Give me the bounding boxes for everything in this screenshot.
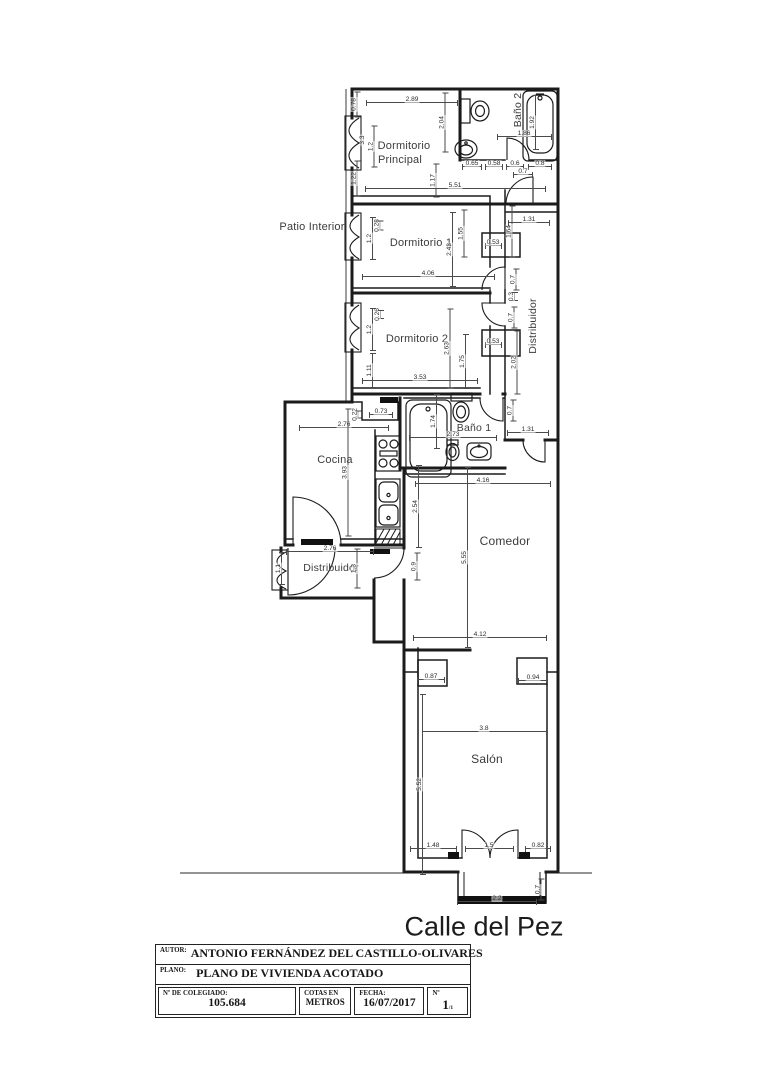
dimension-label: 0.6 — [506, 166, 524, 167]
plan-text-overlay: DormitorioPrincipalBaño 2Patio InteriorD… — [0, 0, 763, 1080]
dimension-label: 0.7 — [513, 174, 533, 175]
units-cell: COTAS EN METROS — [299, 987, 351, 1015]
room-label: Baño 1 — [457, 422, 491, 434]
units-label: COTAS EN — [304, 990, 343, 997]
dimension-label: 0.82 — [525, 848, 551, 849]
plan-label: PLANO: — [160, 967, 186, 974]
dimension-label: 1.2 — [372, 217, 373, 260]
dimension-label: 1.17 — [436, 164, 437, 198]
sheet-number-cell: Nº 1/1 — [427, 987, 468, 1015]
dimension-label: 2.02 — [517, 331, 518, 395]
dimension-label: 1.92 — [535, 95, 536, 150]
dimension-label: 3.93 — [348, 409, 349, 537]
room-label: Dormitorio 2 — [386, 333, 448, 345]
date-value: 16/07/2017 — [358, 997, 420, 1013]
dimension-label: 1.2 — [374, 126, 375, 168]
dimension-label: 2.54 — [418, 465, 419, 548]
title-block-author-row: AUTOR: ANTONIO FERNÁNDEZ DEL CASTILLO-OL… — [156, 945, 470, 965]
college-number-cell: Nº DE COLEGIADO: 105.684 — [158, 987, 296, 1015]
dimension-label: 0.73 — [369, 414, 393, 415]
dimension-label: 0.94 — [518, 680, 548, 681]
dimension-label: 0.28 — [380, 221, 381, 231]
title-block-bottom-row: Nº DE COLEGIADO: 105.684 COTAS EN METROS… — [156, 985, 470, 1017]
title-block-plan-row: PLANO: PLANO DE VIVIENDA ACOTADO — [156, 965, 470, 985]
college-number-value: 105.684 — [162, 997, 292, 1013]
college-number-label: Nº DE COLEGIADO: — [163, 990, 288, 997]
dimension-label: 1.5 — [465, 848, 514, 849]
units-value: METROS — [303, 997, 347, 1013]
room-label: Distribuidor — [527, 298, 539, 354]
room-label: Dormitorio 1 — [390, 237, 452, 249]
dimension-label: 4.06 — [362, 276, 495, 277]
dimension-label: 0.58 — [485, 166, 503, 167]
dimension-label: 0.9 — [417, 553, 418, 581]
dimension-label: 0.22 — [358, 411, 359, 419]
dimension-label: 2.63 — [450, 309, 451, 389]
dimension-label: 0.65 — [462, 166, 482, 167]
room-label: Salón — [471, 752, 503, 766]
dimension-label: 3.8 — [422, 731, 547, 732]
dimension-label: 5.55 — [467, 467, 468, 648]
dimension-label: 0.7 — [516, 269, 517, 291]
title-block: AUTOR: ANTONIO FERNÁNDEZ DEL CASTILLO-OL… — [155, 944, 471, 1018]
dimension-label: 1.31 — [508, 222, 550, 223]
room-label: Principal — [378, 154, 422, 166]
dimension-label: 1.3 — [357, 549, 358, 589]
dimension-label: 2.73 — [409, 437, 497, 438]
dimension-label: 4.12 — [413, 637, 547, 638]
sheet-number-value: 1/1 — [431, 997, 464, 1013]
dimension-label: 2.2 — [457, 901, 537, 902]
dimension-label: 0.26 — [380, 310, 381, 319]
dimension-label: 1.1 — [281, 552, 282, 585]
room-label: Patio Interior — [279, 221, 344, 233]
street-name-label: Calle del Pez — [404, 912, 563, 943]
dimension-label: 0.78 — [357, 92, 358, 118]
dimension-label: 4.16 — [415, 483, 551, 484]
dimension-label: 1.86 — [497, 136, 552, 137]
dimension-label: 2.76 — [299, 427, 389, 428]
dimension-label: 0.7 — [541, 879, 542, 901]
dimension-label: 1.2 — [372, 308, 373, 351]
date-label: FECHA: — [359, 990, 416, 997]
dimension-label: 0.7 — [513, 400, 514, 422]
author-label: AUTOR: — [160, 947, 187, 954]
dimension-label: 1.64 — [512, 206, 513, 258]
floor-plan-page: DormitorioPrincipalBaño 2Patio InteriorD… — [0, 0, 763, 1080]
dimension-label: 0.53 — [485, 344, 502, 345]
dimension-label: 0.8 — [528, 166, 552, 167]
dimension-label: 1.55 — [464, 210, 465, 258]
room-label: Baño 2 — [512, 93, 524, 127]
dimension-label: 5.51 — [365, 188, 546, 189]
author-value: ANTONIO FERNÁNDEZ DEL CASTILLO-OLIVARES — [191, 946, 483, 961]
dimension-label: 0.3 — [514, 292, 515, 301]
dimension-label: 1.48 — [410, 848, 457, 849]
dimension-label: 2.76 — [286, 551, 374, 552]
plan-value: PLANO DE VIVIENDA ACOTADO — [190, 966, 467, 981]
dimension-label: 0.7 — [514, 307, 515, 329]
dimension-label: 0.53 — [485, 245, 502, 246]
dimension-label: 1.31 — [507, 432, 549, 433]
dimension-label: 2.04 — [445, 93, 446, 153]
date-cell: FECHA: 16/07/2017 — [354, 987, 424, 1015]
dimension-label: 0.87 — [417, 679, 445, 680]
sheet-number-sub: /1 — [449, 1005, 453, 1011]
room-label: Dormitorio — [378, 140, 431, 152]
dimension-label: 3.53 — [362, 380, 478, 381]
sheet-number-label: Nº — [432, 990, 460, 997]
dimension-label: 1.22 — [357, 161, 358, 197]
room-label: Comedor — [480, 534, 531, 548]
dimension-label: 1.11 — [372, 353, 373, 388]
dimension-label: 1.74 — [436, 394, 437, 449]
